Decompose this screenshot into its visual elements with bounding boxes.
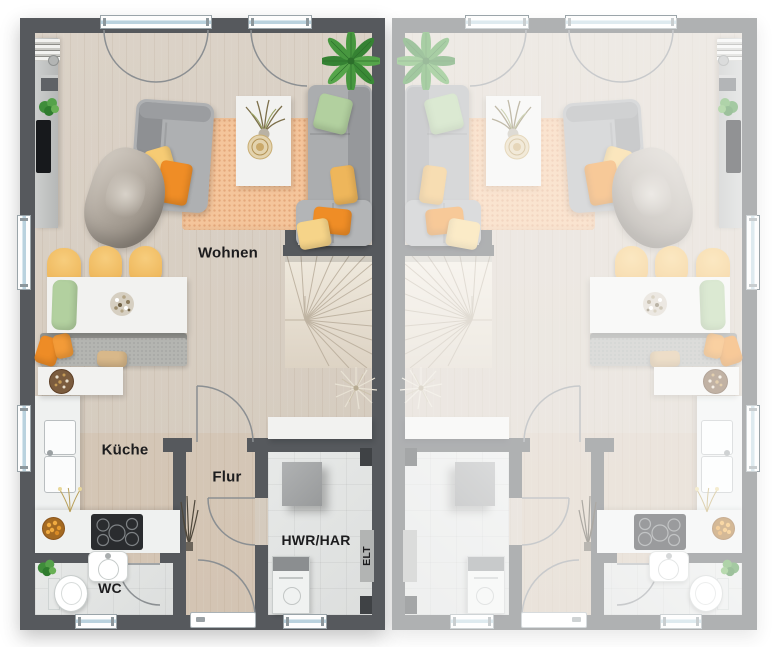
utility-appliance	[282, 462, 322, 506]
window-wc	[660, 614, 702, 629]
unit-left-inner: Wohnen Küche Flur WC HWR/HAR ELT	[392, 18, 757, 630]
washing-machine	[272, 556, 310, 614]
dining-chair	[615, 246, 648, 281]
twig-plant	[577, 494, 599, 552]
window-living-right	[465, 15, 529, 29]
dining-chair	[129, 246, 162, 281]
utility-appliance	[455, 462, 495, 506]
window-living-left	[100, 15, 212, 29]
stair-sideboard	[405, 417, 509, 439]
room-label-hallway: Flur	[212, 469, 241, 486]
dining-chair	[89, 246, 122, 281]
bench-pillow-tan	[97, 350, 128, 367]
decor-jar	[718, 55, 729, 66]
magazine	[41, 75, 58, 91]
room-label-wc: WC	[98, 580, 122, 596]
decor-bowl	[48, 368, 75, 395]
bench-pillow-tan	[650, 350, 681, 367]
dried-plant	[332, 364, 380, 412]
small-plant	[37, 94, 61, 118]
kitchen-faucet	[47, 450, 53, 456]
cooktop	[634, 514, 686, 550]
room-label-electrical: ELT	[361, 546, 373, 566]
wc-sink	[649, 551, 689, 582]
window-kitchen	[746, 405, 760, 472]
fruit-bowl	[711, 516, 736, 541]
entrance-door	[190, 612, 256, 628]
dining-chair	[655, 246, 688, 281]
toilet	[48, 574, 88, 612]
window-dining	[17, 215, 31, 290]
blanket-fold	[99, 162, 152, 226]
window-dining	[746, 215, 760, 290]
decor-jar	[48, 55, 59, 66]
window-kitchen	[17, 405, 31, 472]
table-centerpiece	[641, 290, 669, 318]
room-label-kitchen: Küche	[102, 442, 149, 459]
pillow-yellow-mid	[329, 165, 358, 206]
window-utility	[283, 614, 327, 629]
small-plant	[716, 94, 740, 118]
room-label-living: Wohnen	[198, 245, 258, 262]
tv-screen	[36, 120, 51, 173]
unit-left-inner: Wohnen Küche Flur WC HWR/HAR ELT	[20, 18, 385, 630]
fruit-bowl	[41, 516, 66, 541]
kitchen-flowers	[693, 482, 721, 514]
decor-tray	[247, 134, 273, 160]
window-wc	[75, 614, 117, 629]
tv-screen	[726, 120, 741, 173]
kitchen-faucet	[724, 450, 730, 456]
unit-left: Wohnen Küche Flur WC HWR/HAR ELT	[20, 18, 385, 630]
pillow-yellow-low	[296, 217, 332, 250]
entrance-door	[521, 612, 587, 628]
toilet	[689, 574, 729, 612]
dining-bench-green	[699, 280, 726, 331]
decor-bowl	[702, 368, 729, 395]
decor-tray	[504, 134, 530, 160]
window-living-left	[565, 15, 677, 29]
magazine	[719, 75, 736, 91]
floor-plan: Wohnen Küche Flur WC HWR/HAR ELT	[0, 0, 775, 647]
fern-plant	[397, 32, 455, 90]
window-utility	[450, 614, 494, 629]
pillow-yellow-low	[445, 217, 481, 250]
blanket-fold	[625, 162, 678, 226]
table-centerpiece	[108, 290, 136, 318]
twig-plant	[178, 494, 200, 552]
dining-bench-green	[51, 280, 78, 331]
wc-sink	[88, 551, 128, 582]
unit-right: Wohnen Küche Flur WC HWR/HAR ELT	[392, 18, 757, 630]
kitchen-flowers	[56, 482, 84, 514]
stair-sideboard	[268, 417, 372, 439]
dried-plant	[397, 364, 445, 412]
washing-machine	[467, 556, 505, 614]
room-label-utility: HWR/HAR	[281, 532, 350, 548]
window-living-right	[248, 15, 312, 29]
cooktop	[91, 514, 143, 550]
fern-plant	[322, 32, 380, 90]
electrical-panel	[403, 530, 417, 582]
